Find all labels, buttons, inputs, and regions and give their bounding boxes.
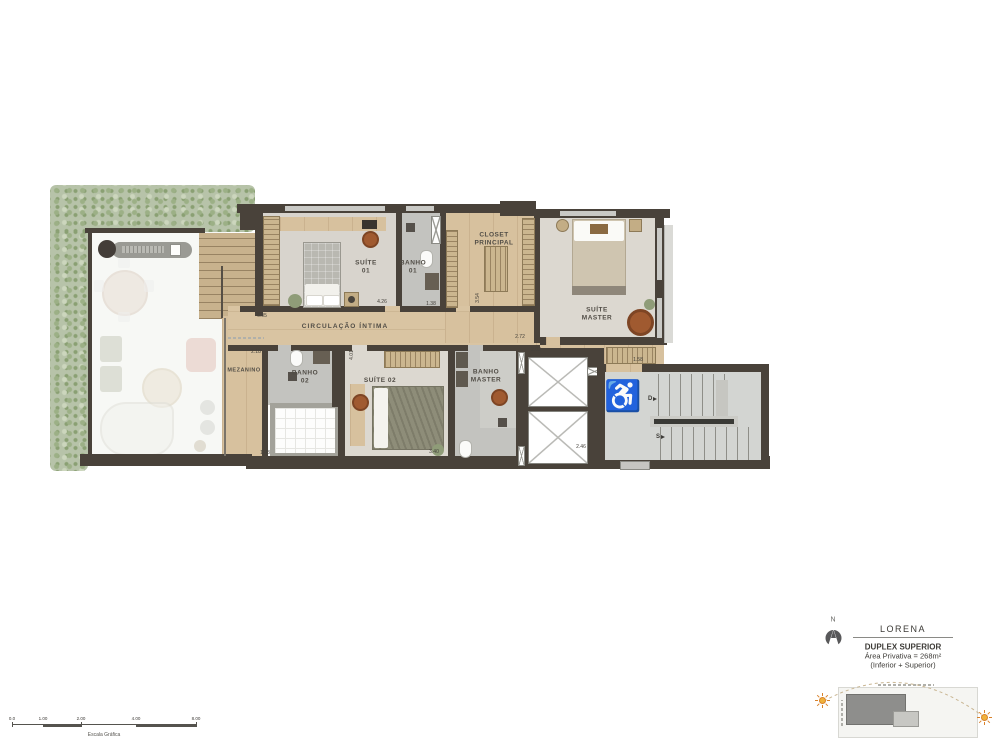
fire-pit xyxy=(98,240,116,258)
pouf xyxy=(627,309,654,336)
dimension-label: 1.43 xyxy=(260,450,270,456)
stair-direction-down: D xyxy=(648,396,657,402)
light-well xyxy=(270,403,340,458)
dimension-label: 6.05 xyxy=(257,313,267,319)
bed-foot xyxy=(572,286,626,295)
north-letter: N xyxy=(830,617,835,624)
scale-caption: Escala Gráfica xyxy=(88,732,121,738)
door-gap xyxy=(468,345,483,351)
dimension-label: 1.58 xyxy=(633,357,643,363)
nightstand xyxy=(556,219,569,232)
floor-drain xyxy=(498,418,507,427)
nightstand xyxy=(629,219,642,232)
scale-tick-mark xyxy=(12,722,13,727)
chair xyxy=(94,280,104,292)
elevator-shaft xyxy=(528,357,588,407)
wall xyxy=(88,228,92,454)
chaise-lounge xyxy=(100,402,174,456)
tv xyxy=(362,220,377,229)
round-chair xyxy=(352,394,369,411)
window xyxy=(657,228,662,280)
side-table xyxy=(194,440,206,452)
toilet xyxy=(459,440,472,458)
vanity xyxy=(313,351,330,364)
wall xyxy=(448,345,455,463)
door-gap xyxy=(278,345,291,351)
room-label-banho-master: BANHO MASTER xyxy=(471,369,501,386)
arrow-right-icon xyxy=(653,397,657,401)
wardrobe xyxy=(446,230,458,308)
room-label-suite02: SUÍTE 02 xyxy=(364,377,396,385)
room-label-circulacao: CIRCULAÇÃO ÍNTIMA xyxy=(302,323,389,331)
scale-tick: 8.00 xyxy=(192,716,201,721)
sun-icon xyxy=(977,710,992,725)
room-label-mezanino: MEZANINO xyxy=(227,367,260,374)
stool xyxy=(491,389,508,406)
closet-island xyxy=(484,246,508,292)
chair xyxy=(118,258,130,268)
round-chair xyxy=(362,231,379,248)
dimension-label: 2.46 xyxy=(576,444,586,450)
vanity xyxy=(456,352,468,368)
wall xyxy=(262,345,268,459)
wall xyxy=(85,228,205,233)
wall xyxy=(338,345,345,463)
scale-tick: 1.00 xyxy=(39,716,48,721)
dimension-label: 2.18 xyxy=(251,349,261,355)
bed-runner xyxy=(590,224,608,234)
dimension-label: 4.26 xyxy=(377,299,387,305)
scale-tick: 2.00 xyxy=(77,716,86,721)
mezzanine-void-dash xyxy=(228,337,264,339)
exterior-ledge xyxy=(664,225,673,343)
room-label-suite-master: SUÍTE MASTER xyxy=(582,307,612,324)
dimension-label: 4.01 xyxy=(349,350,355,360)
door-gap xyxy=(456,306,470,312)
dining-table xyxy=(102,270,148,316)
unit-title: DUPLEX SUPERIOR xyxy=(865,643,941,652)
chair xyxy=(144,280,154,292)
window xyxy=(285,206,385,211)
room-label-suite01: SUÍTE 01 xyxy=(355,260,377,277)
door-gap xyxy=(546,337,560,345)
stair-wall xyxy=(716,380,728,418)
grill-icon xyxy=(170,244,181,256)
shower-door xyxy=(431,216,441,244)
wall xyxy=(80,454,252,466)
legend-divider xyxy=(853,637,953,638)
window xyxy=(657,298,662,338)
scale-tick-mark xyxy=(196,722,197,727)
scale-segment xyxy=(43,725,81,727)
window xyxy=(560,211,616,216)
stair-flight-lower xyxy=(660,427,752,460)
dimension-label: 2.02 xyxy=(531,347,541,353)
vanity xyxy=(425,273,439,290)
room-label-banho02: BANHO 02 xyxy=(292,370,318,387)
room-label-banho01: BANHO 01 xyxy=(400,260,426,277)
wardrobe xyxy=(522,218,535,306)
stair-rail xyxy=(221,266,223,318)
pouf xyxy=(200,400,215,415)
sun-path-arc xyxy=(812,655,997,730)
dimension-label: 3.40 xyxy=(429,449,439,455)
project-name: LORENA xyxy=(880,624,926,634)
dimension-label: 3.54 xyxy=(475,293,481,303)
door-gap xyxy=(606,364,642,372)
scale-tick-mark xyxy=(81,722,82,727)
hedge-top xyxy=(50,185,255,232)
lamp xyxy=(348,296,355,303)
armchair xyxy=(100,336,122,362)
north-compass-icon xyxy=(824,628,843,647)
arrow-right-icon xyxy=(661,435,665,439)
dimension-label: 2.72 xyxy=(515,334,525,340)
pouf xyxy=(200,420,215,435)
pink-armchair xyxy=(186,338,216,372)
wardrobe xyxy=(606,347,656,364)
scale-tick: 4.00 xyxy=(132,716,141,721)
elevator-door xyxy=(518,446,525,466)
plant xyxy=(644,299,655,310)
bar-counter-hatch xyxy=(122,246,164,253)
door-gap xyxy=(385,306,400,312)
handrail xyxy=(654,419,734,424)
mezzanine-rail xyxy=(224,318,226,456)
plant xyxy=(288,294,302,308)
shower-head xyxy=(406,223,415,232)
sun-icon xyxy=(815,693,830,708)
window xyxy=(406,206,434,211)
room-label-closet-principal: CLOSET PRINCIPAL xyxy=(474,232,513,249)
chair xyxy=(118,312,130,322)
stair-landing-step xyxy=(620,461,650,470)
pillows xyxy=(374,388,388,448)
pillow xyxy=(306,295,323,306)
toilet xyxy=(290,350,303,367)
scale-tick: 0.0 xyxy=(9,716,15,721)
scale-segment xyxy=(136,725,196,727)
dimension-label: 1.38 xyxy=(426,301,436,307)
floor-plan-canvas: ♿ D S SUÍTE 01 BANHO 01 CLOSET PRINCIPAL… xyxy=(0,0,1000,750)
wall xyxy=(255,204,263,316)
scale-bar: 0.0 1.00 2.00 4.00 8.00 Escala Gráfica xyxy=(0,712,220,744)
armchair xyxy=(100,366,122,392)
wheelchair-icon: ♿ xyxy=(604,382,638,422)
vanity xyxy=(456,371,468,387)
pillow xyxy=(323,295,340,306)
wall xyxy=(500,201,536,216)
elevator-door xyxy=(518,352,525,374)
wardrobe xyxy=(384,351,440,368)
wardrobe xyxy=(263,216,280,306)
stair-direction-up: S xyxy=(656,434,665,440)
elevator-shaft xyxy=(528,411,588,464)
